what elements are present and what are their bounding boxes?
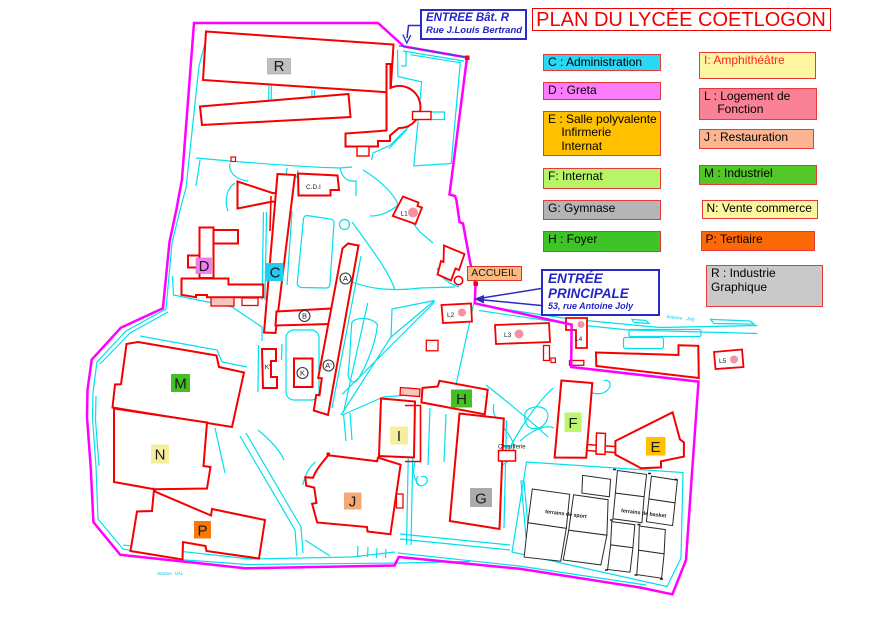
svg-text:Station VAL: Station VAL [157, 571, 184, 577]
svg-text:M: M [174, 376, 187, 393]
svg-text:L1: L1 [401, 211, 409, 218]
svg-text:N: N [155, 447, 166, 464]
svg-text:R: R [274, 58, 285, 75]
svg-text:A': A' [325, 361, 332, 370]
svg-text:L3: L3 [504, 332, 512, 339]
svg-text:L4: L4 [575, 336, 583, 343]
svg-text:C: C [270, 265, 281, 282]
svg-text:D: D [199, 258, 210, 275]
svg-text:C.D.I: C.D.I [306, 184, 321, 191]
svg-text:Antoine Joly: Antoine Joly [665, 314, 696, 323]
svg-text:Chaufferie: Chaufferie [498, 445, 526, 451]
svg-text:G: G [475, 491, 487, 508]
svg-text:L2: L2 [447, 312, 455, 319]
svg-text:H: H [456, 391, 467, 408]
svg-text:J: J [349, 494, 357, 511]
svg-text:E: E [650, 439, 660, 456]
svg-text:K': K' [265, 364, 271, 371]
svg-text:L5: L5 [719, 358, 727, 365]
svg-text:B: B [302, 312, 307, 321]
svg-text:A: A [343, 274, 348, 283]
svg-text:F: F [568, 415, 577, 432]
svg-text:I: I [397, 428, 401, 445]
svg-text:K: K [300, 369, 305, 378]
svg-text:P: P [197, 523, 207, 540]
